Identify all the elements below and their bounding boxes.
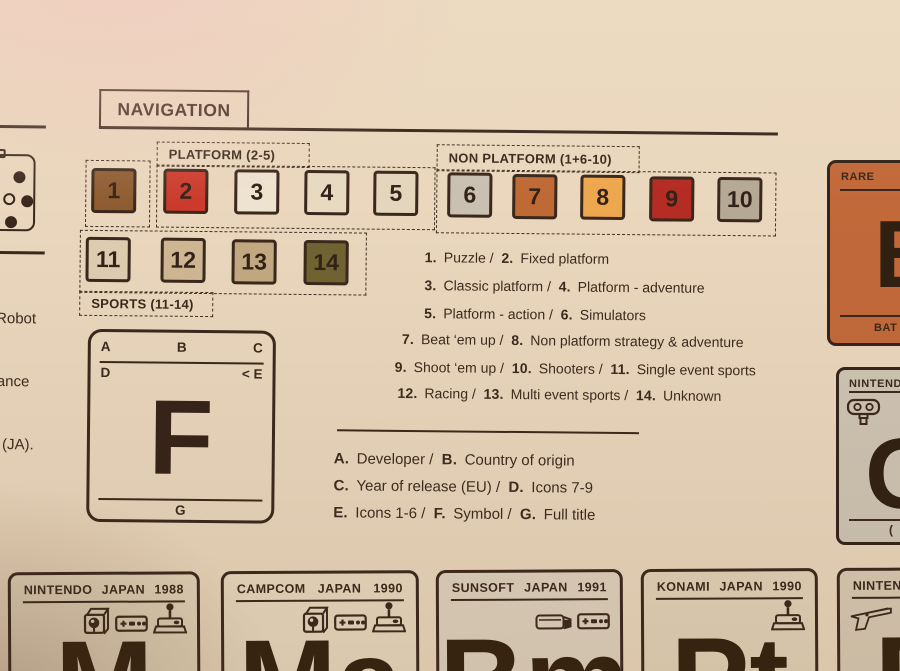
element-card-nintendo-1: NINTENDOJAPAN1988M bbox=[8, 571, 201, 671]
poster-photo: Robot lance r (JA). NAVIGATION PLATFORM … bbox=[0, 0, 900, 671]
element-symbol: Pt bbox=[644, 631, 816, 671]
country-label: JAPAN bbox=[102, 583, 146, 597]
element-card-konami-4: KONAMIJAPAN1990Pt bbox=[641, 568, 819, 671]
element-card-header: NINTENDO bbox=[840, 570, 900, 593]
g-card-footer-text: ( bbox=[889, 523, 894, 537]
rare-foot-rule bbox=[840, 315, 900, 317]
element-card-header: NINTENDOJAPAN1988 bbox=[11, 574, 197, 597]
country-label: JAPAN bbox=[719, 579, 763, 593]
element-symbol: Bm bbox=[439, 632, 621, 671]
publisher-label: NINTENDO bbox=[24, 583, 93, 597]
element-cards-row: NINTENDOJAPAN1988MCAMPCOMJAPAN1990MaSUNS… bbox=[0, 568, 900, 671]
element-symbol: D bbox=[840, 630, 900, 671]
element-symbol: M bbox=[11, 634, 198, 671]
g-card-publisher: NINTENDO bbox=[849, 378, 900, 390]
year-label: 1988 bbox=[154, 582, 183, 596]
element-card-header: CAMPCOMJAPAN1990 bbox=[224, 573, 416, 596]
g-card-rule bbox=[849, 391, 900, 393]
publisher-label: SUNSOFT bbox=[452, 581, 515, 595]
year-label: 1990 bbox=[772, 579, 801, 593]
g-card-foot-rule bbox=[849, 519, 900, 521]
rare-rule bbox=[840, 189, 900, 191]
publisher-label: KONAMI bbox=[657, 580, 710, 594]
publisher-label: NINTENDO bbox=[853, 579, 900, 593]
element-card-header: KONAMIJAPAN1990 bbox=[644, 571, 815, 594]
element-card-rare: RARE B BAT bbox=[827, 160, 900, 346]
country-label: JAPAN bbox=[524, 580, 568, 594]
year-label: 1990 bbox=[373, 581, 402, 595]
element-card-nintendo-g: NINTENDO G ( bbox=[836, 367, 900, 545]
element-card-campcom-2: CAMPCOMJAPAN1990Ma bbox=[221, 570, 420, 671]
year-label: 1991 bbox=[577, 580, 606, 594]
element-card-nintendo-5: NINTENDOD bbox=[837, 567, 900, 671]
g-card-symbol: G bbox=[865, 424, 900, 524]
rare-footer-text: BAT bbox=[874, 322, 897, 334]
element-symbol: Ma bbox=[224, 633, 417, 671]
rare-tag: RARE bbox=[841, 171, 875, 183]
element-card-header: SUNSOFTJAPAN1991 bbox=[439, 572, 620, 595]
rare-symbol: B bbox=[874, 207, 900, 303]
publisher-label: CAMPCOM bbox=[237, 582, 306, 596]
country-label: JAPAN bbox=[318, 581, 362, 595]
element-card-sunsoft-3: SUNSOFTJAPAN1991Bm bbox=[436, 569, 624, 671]
